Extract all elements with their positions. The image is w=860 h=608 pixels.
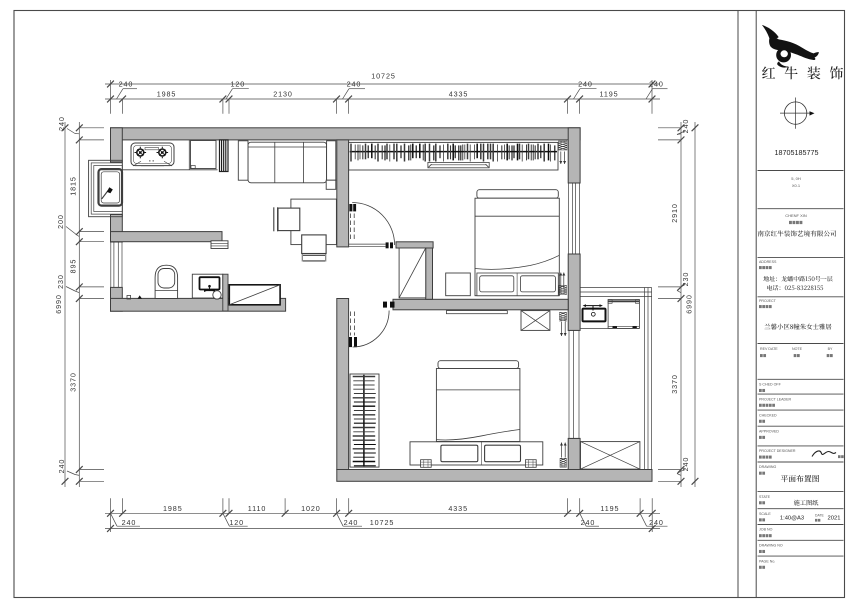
- svg-text:BY: BY: [828, 347, 833, 351]
- svg-text:6990: 6990: [685, 294, 694, 314]
- svg-text:CHENF XIN: CHENF XIN: [785, 213, 807, 218]
- svg-text:200: 200: [56, 214, 65, 229]
- svg-text:1985: 1985: [157, 90, 177, 99]
- svg-text:3370: 3370: [69, 372, 78, 392]
- svg-text:X0.1: X0.1: [792, 183, 801, 188]
- svg-text:240: 240: [649, 518, 664, 527]
- svg-text:STATE: STATE: [759, 495, 771, 499]
- svg-text:4335: 4335: [449, 90, 469, 99]
- svg-text:JOB NO: JOB NO: [759, 528, 773, 532]
- svg-text:120: 120: [230, 80, 245, 89]
- svg-text:2910: 2910: [670, 203, 679, 223]
- svg-text:DRAWING NO: DRAWING NO: [759, 544, 783, 548]
- svg-text:1815: 1815: [69, 176, 78, 196]
- svg-text:1195: 1195: [600, 504, 619, 513]
- svg-text:240: 240: [119, 80, 134, 89]
- svg-text:230: 230: [681, 272, 690, 287]
- svg-text:240: 240: [681, 457, 690, 472]
- svg-text:240: 240: [681, 119, 690, 134]
- svg-text:DATE: DATE: [815, 514, 825, 518]
- svg-text:1:40@A3: 1:40@A3: [780, 516, 804, 522]
- svg-text:REV DATE: REV DATE: [760, 347, 778, 351]
- svg-text:240: 240: [578, 80, 593, 89]
- svg-text:240: 240: [57, 116, 66, 131]
- svg-text:PROJECT LEADER: PROJECT LEADER: [759, 397, 791, 401]
- svg-text:240: 240: [122, 518, 137, 527]
- svg-text:1110: 1110: [248, 504, 267, 513]
- svg-text:3370: 3370: [670, 374, 679, 394]
- svg-text:230: 230: [56, 274, 65, 289]
- svg-text:10725: 10725: [371, 72, 396, 81]
- svg-text:120: 120: [229, 518, 244, 527]
- svg-text:CHECKED: CHECKED: [759, 413, 777, 417]
- svg-text:SCALE: SCALE: [759, 512, 771, 516]
- svg-text:PROJECT DESIGNER: PROJECT DESIGNER: [759, 449, 796, 453]
- svg-text:1195: 1195: [599, 90, 618, 99]
- svg-text:240: 240: [57, 459, 66, 474]
- svg-text:240: 240: [347, 80, 362, 89]
- svg-text:10725: 10725: [370, 518, 395, 527]
- svg-text:PROJECT: PROJECT: [759, 299, 777, 303]
- svg-text:PAGE No.: PAGE No.: [759, 559, 775, 563]
- svg-text:APPROVED: APPROVED: [759, 429, 779, 433]
- svg-text:2130: 2130: [273, 90, 293, 99]
- svg-text:S CHED OFF: S CHED OFF: [759, 383, 782, 387]
- svg-text:6990: 6990: [54, 294, 63, 314]
- svg-text:2021: 2021: [828, 516, 841, 522]
- svg-text:NOTE: NOTE: [792, 347, 803, 351]
- svg-text:895: 895: [69, 259, 78, 274]
- svg-text:5, 0H: 5, 0H: [791, 176, 801, 181]
- svg-text:18705185775: 18705185775: [775, 148, 819, 157]
- svg-text:240: 240: [649, 80, 664, 89]
- svg-text:1020: 1020: [301, 504, 321, 513]
- svg-text:1985: 1985: [163, 504, 183, 513]
- svg-text:4335: 4335: [448, 504, 468, 513]
- svg-text:240: 240: [581, 518, 596, 527]
- svg-text:DRAWING: DRAWING: [759, 465, 776, 469]
- svg-text:240: 240: [344, 518, 359, 527]
- svg-text:ADDRESS: ADDRESS: [759, 260, 777, 264]
